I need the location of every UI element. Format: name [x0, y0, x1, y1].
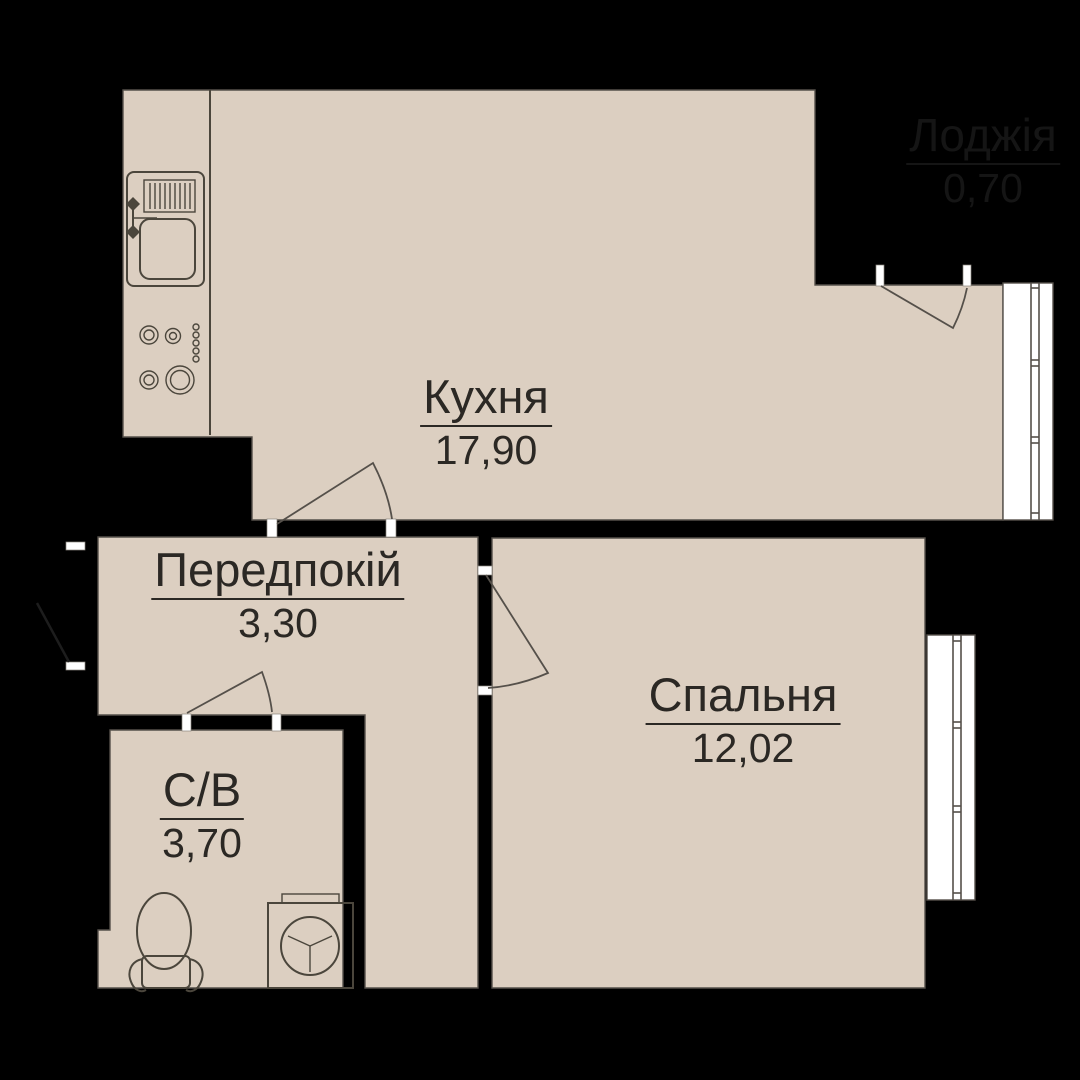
- room-area: 3,30: [151, 601, 404, 645]
- room-area: 12,02: [646, 726, 841, 770]
- entrance-door-jamb: [66, 542, 85, 550]
- room-label-loggia: Лоджія 0,70: [906, 111, 1060, 210]
- bathroom-door-jamb: [182, 714, 191, 731]
- entrance-door-jamb: [66, 662, 85, 670]
- room-name: Передпокій: [151, 545, 404, 600]
- room-name: Спальня: [646, 670, 841, 725]
- room-label-bedroom: Спальня 12,02: [646, 670, 841, 770]
- room-name: Лоджія: [906, 111, 1060, 165]
- floor-plan: Кухня 17,90 Передпокій 3,30 Спальня 12,0…: [0, 0, 1080, 1080]
- room-name: С/В: [160, 765, 244, 820]
- loggia-door-jamb: [876, 265, 884, 286]
- bathroom-door-jamb: [272, 714, 281, 731]
- loggia-door-jamb: [963, 265, 971, 286]
- bedroom-door-jamb: [478, 566, 492, 575]
- kitchen-floor-area: [123, 90, 1003, 520]
- kitchen-window-icon: [1003, 283, 1053, 520]
- bedroom-window-icon: [927, 635, 975, 900]
- room-area: 17,90: [420, 428, 552, 472]
- room-area: 0,70: [906, 166, 1060, 210]
- kitchen-door-jamb: [267, 519, 277, 537]
- room-name: Кухня: [420, 372, 552, 427]
- kitchen-door-jamb: [386, 519, 396, 537]
- room-label-bathroom: С/В 3,70: [160, 765, 244, 865]
- room-label-kitchen: Кухня 17,90: [420, 372, 552, 472]
- room-area: 3,70: [160, 821, 244, 865]
- entrance-door-leaf-icon: [37, 603, 69, 662]
- room-label-hallway: Передпокій 3,30: [151, 545, 404, 645]
